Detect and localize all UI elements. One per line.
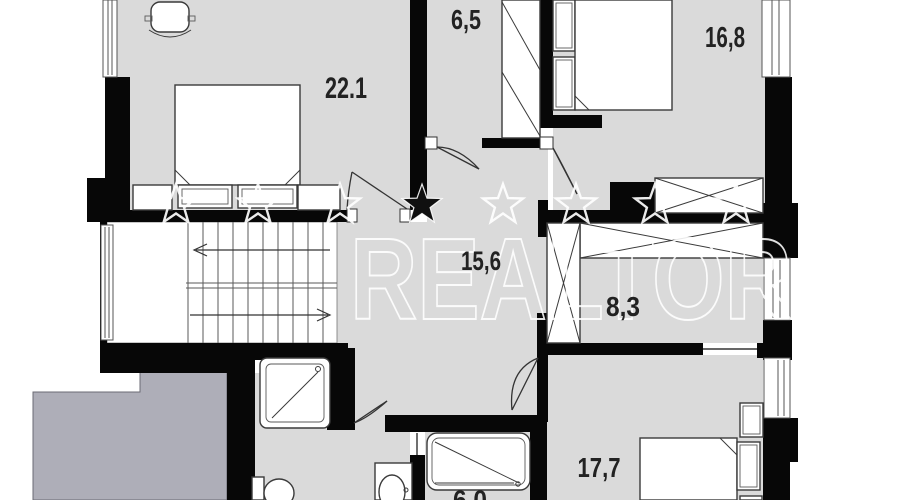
label-closet: 6,5: [451, 4, 481, 35]
staircase: [107, 222, 337, 343]
sliding-wardrobe-icon: [502, 0, 540, 138]
window-bedroom-bottom: [764, 358, 790, 418]
window-stairs-left: [101, 225, 113, 340]
void-block: [33, 372, 227, 500]
window-bedroom-top-right: [762, 0, 790, 77]
label-bedroom-top-right: 16,8: [705, 22, 745, 54]
label-bathroom: 6,0: [453, 485, 487, 500]
wardrobe-16-8-icon: [655, 178, 763, 213]
label-wardrobe-room: 8,3: [606, 291, 640, 322]
floor-plan-page: REALTOR 22.1 6,5 16,8 15,6 8,3 17,7 6,0: [0, 0, 900, 500]
label-bedroom-top-left: 22.1: [325, 72, 367, 105]
shower-cabin-icon: [260, 358, 330, 428]
sink-icon: [375, 463, 412, 500]
watermark-text: REALTOR: [350, 214, 792, 344]
bathtub-icon: [427, 433, 530, 490]
label-hall: 15,6: [461, 246, 501, 276]
floor-plan-drawing: REALTOR 22.1 6,5 16,8 15,6 8,3 17,7 6,0: [0, 0, 900, 500]
chair-icon: [145, 2, 195, 37]
label-bedroom-bottom: 17,7: [578, 452, 621, 483]
window-top-left: [103, 0, 117, 77]
